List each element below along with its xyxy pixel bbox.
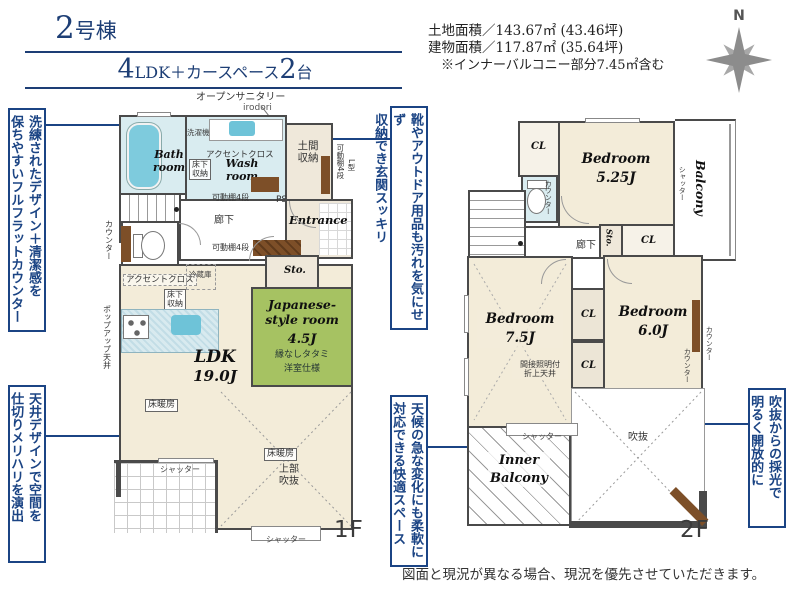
hallway-2f-label: 廊下 [576, 240, 596, 252]
bedroom60-counter-label-in: カウンター [683, 348, 691, 390]
genkan-storage-label: 土間 収納 [291, 140, 325, 165]
ldk-name: LDK [173, 347, 257, 367]
floor-heating-2-label: 床暖房 [264, 448, 297, 461]
genkan-lshape-label: L型 [346, 159, 355, 181]
tatami-note2: 洋室仕様 [274, 364, 330, 375]
bedroom60-counter-label-out: カウンター [705, 326, 713, 368]
ldk-shutter-label: シャッター [266, 535, 306, 544]
toilet-counter-1f [121, 226, 131, 262]
terrace-shutter-window [158, 458, 214, 463]
void-label: 吹抜 [628, 432, 648, 444]
ceiling-note-label: 間接照明付 折上天井 [512, 360, 568, 379]
stove-icon [123, 315, 149, 339]
ldk-label: LDK 19.0J [173, 347, 257, 385]
layout-mid: LDK＋カースペース [135, 63, 280, 82]
area-note: ※インナーバルコニー部分7.45㎡含む [441, 58, 665, 73]
balcony-railing-line [729, 124, 731, 256]
fridge-label: 冷蔵庫 [189, 271, 212, 280]
inner-balcony-label: Inner Balcony [488, 452, 550, 487]
underfloor-wash-label: 床下 収納 [189, 159, 211, 180]
header-rule-bottom [25, 87, 402, 89]
callout-void-light: 吹抜からの採光で 明るく開放的に [748, 388, 786, 528]
shelf-hall-bottom-label: 可動棚4段 [212, 243, 249, 252]
layout-subtitle: 4LDK＋カースペース2台 [60, 54, 370, 85]
cl-mid-lower-label: CL [581, 360, 596, 372]
shelf-hall-top-label: 可動棚4段 [212, 193, 249, 202]
irodori-label: irodori [243, 103, 272, 114]
inner-balcony-shutter-label: シャッター [522, 432, 562, 441]
sto-2f-label: Sto. [604, 229, 613, 255]
page-title: 2号棟 [55, 10, 117, 46]
compass-rose-icon: N [702, 4, 776, 100]
terrace-wall-stub [116, 463, 121, 497]
balcony-shutter-label: シャッター [678, 166, 686, 212]
layout-num2: 2 [279, 54, 296, 85]
cl-mid-upper-label: CL [581, 309, 596, 321]
entrance-porch [319, 203, 351, 255]
callout-flat-counter: 洗練されたデザイン＋清潔感を 保ちやすいフルフラットカウンター [8, 108, 46, 332]
floor-heating-1-label: 床暖房 [145, 399, 178, 412]
building-suffix: 号棟 [75, 19, 117, 43]
open-sanitary-label: オープンサニタリー [196, 92, 285, 104]
layout-num1: 4 [117, 54, 134, 85]
ldk-shutter-box: シャッター [251, 526, 321, 541]
bedroom75-window-2 [464, 358, 469, 396]
leader-ceiling-h [46, 435, 130, 437]
ldk-size: 19.0J [173, 367, 257, 385]
cl-right-label: CL [641, 235, 656, 247]
toilet-counter-2f-label: カウンター [544, 180, 552, 222]
upper-void-label: 上部 吹抜 [274, 464, 304, 488]
bedroom-75-label: Bedroom 7.5J [477, 310, 563, 348]
callout-genkan-storage: 靴やアウトドア用品も汚れを気にせず 収納でき玄関スッキリ [390, 106, 428, 330]
sto-1f-label: Sto. [284, 265, 306, 277]
stairs-2f [468, 190, 526, 258]
bedroom525-window [585, 118, 640, 123]
bedroom-525-label: Bedroom 5.25J [575, 150, 657, 188]
japanese-room-size: 4.5J [282, 332, 322, 347]
terrace-shutter-label: シャッター [160, 465, 200, 474]
callout-ceiling-design: 天井デザインで空間を 仕切りメリハリを演出 [8, 385, 46, 563]
inner-balcony-shutter-box: シャッター [506, 423, 578, 436]
building-area: 建物面積／117.87㎡ (35.64坪) [428, 41, 623, 57]
japanese-room-label: Japanese- style room [256, 298, 348, 328]
disclaimer: 図面と現況が異なる場合、現況を優先させていただきます。 [402, 568, 765, 584]
callout-inner-balcony: 天候の急な変化にも柔軟に 対応できる快適スペース [390, 395, 428, 567]
cl-topleft-label: CL [531, 141, 546, 153]
compass-north-label: N [733, 8, 745, 24]
washer-label: 洗濯機 [187, 129, 210, 138]
tatami-note1: 縁なしタタミ [266, 350, 338, 361]
underfloor-ldk-label: 床下 収納 [164, 289, 186, 310]
popup-ceiling-label: ポップアップ天井 [102, 305, 111, 397]
stairs-dn-dot [518, 241, 523, 246]
land-area: 土地面積／143.67㎡ (43.46坪) [428, 24, 623, 40]
bedroom75-window-1 [464, 295, 469, 333]
bath-window [137, 112, 171, 117]
header-rule-top [25, 51, 402, 53]
genkan-shelf [321, 156, 330, 194]
floor2-label: 2F [680, 517, 710, 544]
toilet-bowl-1f [141, 231, 165, 260]
balcony-label: Balcony [692, 160, 707, 255]
layout-tail: 台 [297, 63, 313, 82]
bedroom-60-label: Bedroom 6.0J [611, 303, 695, 341]
genkan-shelf-label: 可動棚4段 [335, 144, 344, 196]
wash-shelf [251, 177, 279, 192]
floor1-label: 1F [334, 517, 364, 544]
bedroom60-counter [692, 300, 700, 352]
floorplan-sheet: 2号棟 4LDK＋カースペース2台 土地面積／143.67㎡ (43.46坪) … [0, 0, 800, 600]
building-number: 2 [55, 10, 75, 46]
bathroom-label: Bath room [146, 149, 192, 175]
counter-1f-label: カウンター [104, 220, 113, 270]
kitchen-sink-icon [171, 315, 201, 335]
hallway-1f-label: 廊下 [214, 215, 234, 227]
sanitary-basin-icon [229, 121, 255, 136]
